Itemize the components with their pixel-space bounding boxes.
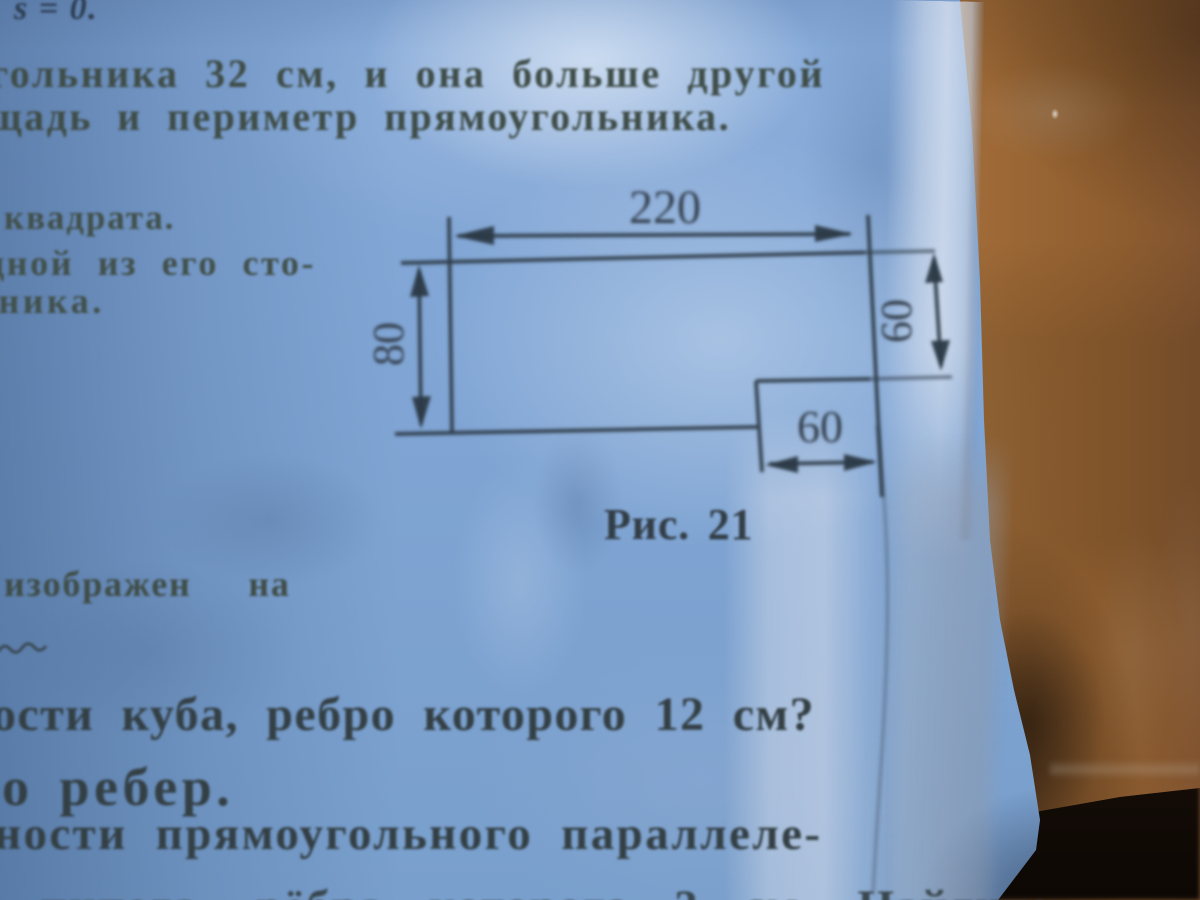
svg-text:60: 60 xyxy=(872,299,921,343)
svg-text:60: 60 xyxy=(797,401,843,452)
svg-text:220: 220 xyxy=(629,190,701,234)
svg-text:80: 80 xyxy=(370,322,413,366)
